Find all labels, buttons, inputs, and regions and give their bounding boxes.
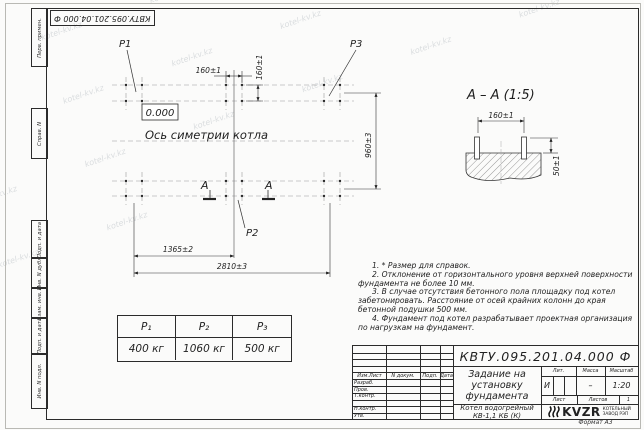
loads-table-value: 500 кг: [233, 338, 291, 360]
tb-company-name: КОТЕЛЬНЫЙ ЗАВОД РЭП: [603, 407, 631, 417]
section-view: А – А (1:5) 160±1 50±1: [466, 88, 561, 184]
tb-sheets-value: 1: [619, 395, 638, 404]
loads-table: P₁ P₂ P₃ 400 кг 1060 кг 500 кг: [117, 315, 292, 362]
tb-col-izm-list: Изм.Лист: [353, 372, 386, 379]
tb-col-podp: Подп.: [420, 372, 440, 379]
section-title: А – А (1:5): [466, 88, 535, 103]
tb-company-logo-text: KVZR: [562, 405, 601, 419]
tb-company-name-line: КОТЕЛЬНЫЙ: [603, 407, 631, 412]
tb-product-name: Котел водогрейный КВ-1,1 КБ (К): [453, 404, 541, 419]
loads-table-header: P₂: [176, 316, 234, 338]
dim-2810: 2810±3: [217, 262, 247, 271]
tb-role-prov: Пров.: [354, 386, 386, 393]
note-item: 4. Фундамент под котел разрабатывает про…: [358, 315, 639, 333]
loads-table-header: P₁: [118, 316, 176, 338]
dim-1365: 1365±2: [163, 245, 193, 254]
tb-lit-header: Лит.: [541, 366, 576, 376]
elevation-mark: 0.000: [146, 108, 175, 119]
section-letter-left: A: [200, 179, 209, 192]
tb-col-data: Дата: [440, 372, 453, 379]
note-item: 2. Отклонение от горизонтального уровня …: [358, 271, 639, 289]
tb-company-cell: KVZR КОТЕЛЬНЫЙ ЗАВОД РЭП: [541, 404, 638, 419]
tb-lit-value: И: [541, 376, 553, 395]
tb-title-line: Задание на: [468, 369, 526, 380]
anchor-bolt-left: [475, 137, 480, 159]
tb-title-line: фундамента: [466, 391, 529, 402]
tb-mass-header: Масса: [576, 366, 605, 376]
plan-view: P1 P3 P2 0.000 Ось симетрии котла 160±1 …: [112, 39, 381, 277]
tb-scale-header: Масштаб: [605, 366, 638, 376]
dim-160-horizontal: 160±1: [196, 66, 221, 75]
section-letter-right: A: [264, 179, 273, 192]
tb-sheet-label: Лист: [541, 395, 577, 404]
format-label: Формат А3: [548, 419, 643, 426]
tb-role-tkontr: Т.контр.: [354, 393, 386, 400]
dim-960: 960±3: [364, 132, 373, 158]
kvzr-logo-icon: [548, 405, 560, 418]
tb-company-name-line: ЗАВОД РЭП: [603, 412, 631, 417]
tb-scale-value: 1:20: [605, 376, 638, 395]
loads-table-value: 1060 кг: [176, 338, 234, 360]
load-label-p3: P3: [350, 39, 362, 50]
loads-table-value: 400 кг: [118, 338, 176, 360]
loads-table-header: P₃: [233, 316, 291, 338]
note-item: 3. В случае отсутствия бетонного пола пл…: [358, 288, 639, 314]
load-label-p1: P1: [119, 39, 131, 50]
tb-product-line: Котел водогрейный: [460, 404, 534, 412]
tb-sheets-label: Листов: [577, 395, 619, 404]
load-label-p2: P2: [246, 228, 258, 239]
dim-section-50: 50±1: [552, 155, 561, 176]
dim-section-160: 160±1: [488, 111, 513, 120]
tb-role-razrab: Разраб.: [354, 379, 386, 386]
anchor-bolt-right: [522, 137, 527, 159]
title-block: Изм.Лист N докум. Подп. Дата Разраб. Про…: [352, 345, 639, 420]
tb-document-title: Задание на установку фундамента: [453, 366, 541, 404]
tb-doc-number: КВТУ.095.201.04.000 Ф: [453, 346, 638, 366]
dim-160-vertical: 160±1: [255, 55, 264, 80]
symmetry-axis-label: Ось симетрии котла: [145, 128, 268, 142]
tb-col-n-dokum: N докум.: [386, 372, 420, 379]
tb-role-utv: Утв.: [354, 413, 386, 420]
tb-product-line: КВ-1,1 КБ (К): [473, 412, 521, 420]
tb-title-line: установку: [471, 380, 522, 391]
notes-block: 1. * Размер для справок. 2. Отклонение о…: [358, 262, 639, 332]
tb-mass-value: –: [576, 376, 605, 395]
